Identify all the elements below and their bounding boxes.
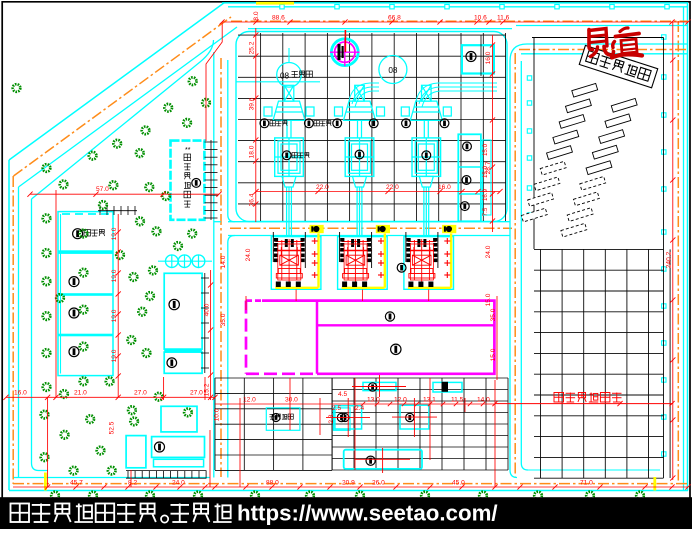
- svg-text:https://www.seetao.com/: https://www.seetao.com/: [237, 501, 498, 526]
- svg-text:08: 08: [388, 66, 398, 75]
- svg-text:52.5: 52.5: [109, 421, 116, 434]
- svg-text:16.0: 16.0: [485, 51, 492, 64]
- svg-text:57.0: 57.0: [96, 186, 109, 193]
- svg-text:19.0: 19.0: [111, 227, 118, 240]
- svg-text:**: **: [185, 147, 191, 154]
- svg-text:71.0: 71.0: [580, 479, 593, 486]
- svg-text:240.2: 240.2: [665, 251, 672, 268]
- svg-text:30.0: 30.0: [285, 397, 298, 404]
- svg-text:22.0: 22.0: [316, 184, 329, 191]
- svg-text:24.0: 24.0: [485, 245, 492, 258]
- svg-text:22.0: 22.0: [386, 184, 399, 191]
- svg-text:11.6: 11.6: [497, 15, 510, 22]
- svg-text:21.0: 21.0: [74, 390, 87, 397]
- svg-text:39.6: 39.6: [249, 97, 256, 110]
- svg-text:14.0: 14.0: [477, 397, 490, 404]
- svg-text:16.0: 16.0: [14, 390, 27, 397]
- svg-text:10.6: 10.6: [474, 15, 487, 22]
- svg-text:8.2: 8.2: [128, 479, 137, 486]
- svg-text:45.7: 45.7: [70, 479, 83, 486]
- svg-text:36.4: 36.4: [249, 193, 256, 206]
- svg-text:25.2: 25.2: [249, 41, 256, 54]
- svg-text:24.0: 24.0: [245, 248, 252, 261]
- svg-text:12.0: 12.0: [243, 397, 256, 404]
- svg-text:2.5: 2.5: [332, 405, 341, 412]
- svg-text:40.0: 40.0: [204, 303, 211, 316]
- svg-text:19.0: 19.0: [111, 309, 118, 322]
- svg-text:2.3: 2.3: [328, 414, 335, 423]
- svg-text:19.0: 19.0: [111, 269, 118, 282]
- svg-text:45.0: 45.0: [452, 479, 465, 486]
- svg-text:16.9: 16.9: [482, 188, 489, 201]
- svg-text:15.0: 15.0: [482, 143, 489, 156]
- svg-text:35.0: 35.0: [220, 313, 227, 326]
- svg-text:88.0: 88.0: [266, 479, 279, 486]
- svg-text:2.4: 2.4: [355, 405, 364, 412]
- svg-text:8.0: 8.0: [253, 11, 260, 20]
- svg-text:35.0: 35.0: [490, 308, 497, 321]
- svg-text:66.8: 66.8: [388, 15, 401, 22]
- svg-text:20.9: 20.9: [342, 479, 355, 486]
- svg-text:27.0: 27.0: [190, 390, 203, 397]
- svg-text:08: 08: [280, 71, 290, 80]
- svg-text:16.0: 16.0: [438, 184, 451, 191]
- svg-text:10.0: 10.0: [214, 408, 221, 421]
- svg-text:7.5: 7.5: [482, 207, 489, 216]
- svg-text:24.0: 24.0: [172, 479, 185, 486]
- svg-text:27.0: 27.0: [134, 390, 147, 397]
- svg-text:26.0: 26.0: [372, 479, 385, 486]
- svg-text:15.0: 15.0: [482, 165, 489, 178]
- svg-text:15.0: 15.0: [490, 348, 497, 361]
- svg-text:19.0: 19.0: [111, 349, 118, 362]
- svg-text:14.0: 14.0: [220, 255, 227, 268]
- svg-text:88.6: 88.6: [272, 15, 285, 22]
- svg-text:18.0: 18.0: [249, 145, 256, 158]
- svg-text:15.2: 15.2: [204, 383, 211, 396]
- svg-text:4.5: 4.5: [338, 391, 347, 398]
- svg-text:15.0: 15.0: [485, 293, 492, 306]
